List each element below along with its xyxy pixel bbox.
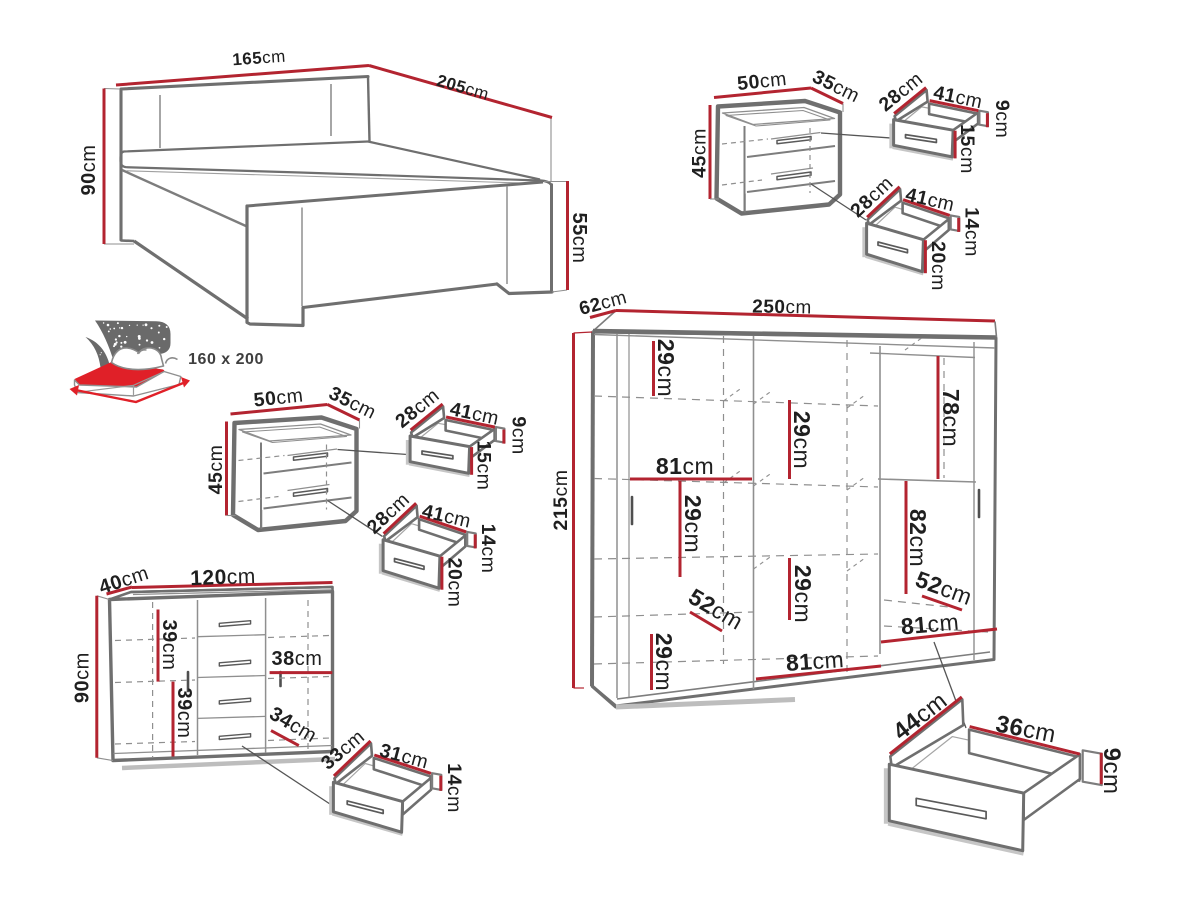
svg-text:9cm: 9cm xyxy=(991,100,1013,138)
svg-text:90cm: 90cm xyxy=(72,652,94,703)
svg-text:29cm: 29cm xyxy=(790,565,816,623)
svg-text:39cm: 39cm xyxy=(173,688,195,739)
svg-text:120cm: 120cm xyxy=(190,564,256,589)
svg-text:9cm: 9cm xyxy=(1099,748,1126,795)
svg-text:165cm: 165cm xyxy=(232,46,287,69)
svg-text:29cm: 29cm xyxy=(651,633,677,691)
svg-text:15cm: 15cm xyxy=(956,124,978,174)
svg-text:14cm: 14cm xyxy=(477,524,499,574)
svg-text:81cm: 81cm xyxy=(900,609,960,640)
svg-text:215cm: 215cm xyxy=(550,469,572,530)
svg-text:82cm: 82cm xyxy=(905,509,931,567)
svg-text:160 x 200: 160 x 200 xyxy=(188,351,264,368)
svg-text:29cm: 29cm xyxy=(653,339,679,397)
svg-text:15cm: 15cm xyxy=(473,441,495,491)
svg-text:250cm: 250cm xyxy=(752,296,812,318)
svg-text:9cm: 9cm xyxy=(508,416,530,454)
svg-text:14cm: 14cm xyxy=(961,207,983,257)
svg-text:81cm: 81cm xyxy=(785,646,845,676)
svg-text:14cm: 14cm xyxy=(443,763,465,813)
svg-text:38cm: 38cm xyxy=(272,648,323,670)
svg-text:20cm: 20cm xyxy=(444,558,466,608)
svg-text:29cm: 29cm xyxy=(680,495,706,553)
svg-text:78cm: 78cm xyxy=(938,389,964,447)
svg-text:39cm: 39cm xyxy=(158,620,180,671)
svg-text:29cm: 29cm xyxy=(789,411,815,469)
svg-text:55cm: 55cm xyxy=(568,213,590,264)
svg-text:81cm: 81cm xyxy=(656,453,714,479)
svg-text:20cm: 20cm xyxy=(927,241,949,291)
svg-text:90cm: 90cm xyxy=(78,145,100,196)
